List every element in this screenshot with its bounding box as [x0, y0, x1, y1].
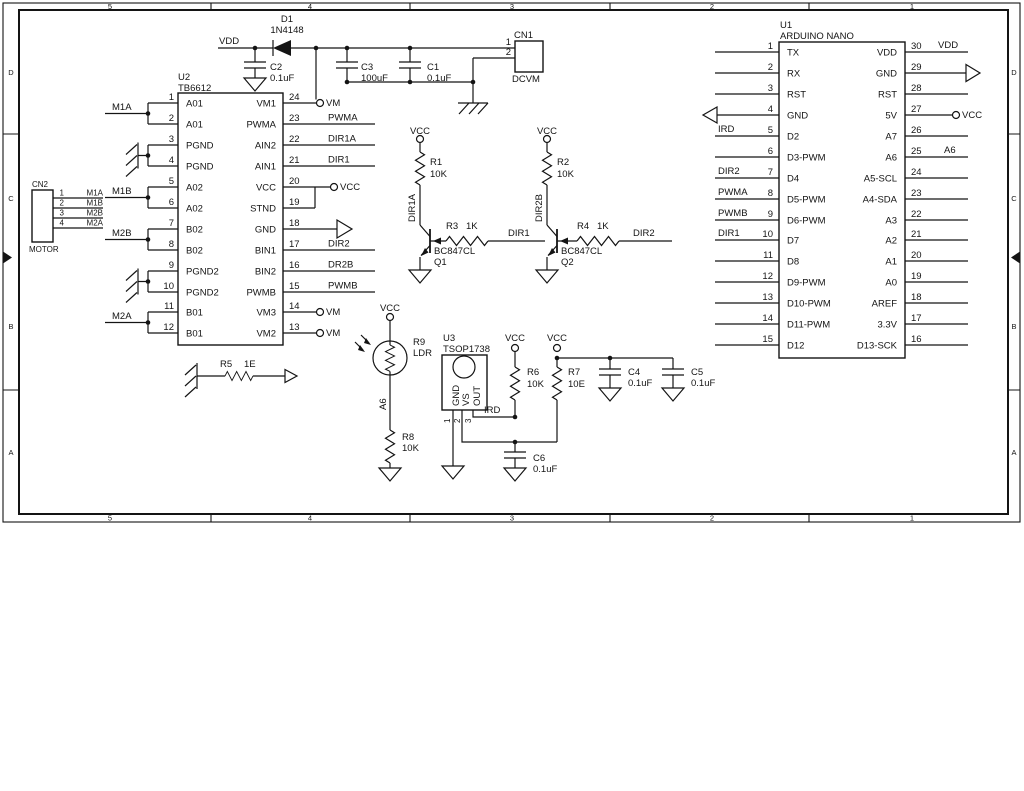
u1-pin-name: A7 [885, 132, 897, 143]
u1-pin-number: 15 [762, 334, 773, 345]
ground-symbols [126, 78, 684, 481]
zone-row-left: D [8, 68, 14, 77]
u1-pin-number: 21 [911, 229, 922, 240]
vcc-port-icon [387, 314, 394, 321]
u1-pin-name: GND [787, 111, 808, 122]
diode-d1: D1 1N4148 [270, 14, 303, 56]
zone-col-bottom: 3 [510, 514, 514, 523]
u2-pin-name: B01 [186, 329, 203, 340]
u2-pin-number: 2 [169, 113, 174, 124]
net-label: IRD [718, 124, 735, 135]
c5-value: 0.1uF [691, 378, 715, 389]
u2-pin-number: 22 [289, 134, 300, 145]
net-label: IRD [484, 405, 501, 416]
gnd-icon [442, 466, 464, 479]
zone-col-top: 1 [910, 2, 914, 11]
net-label: VDD [938, 40, 958, 51]
u2-pin-name: VM3 [256, 308, 276, 319]
net-label: DIR1A [328, 134, 357, 145]
driver-q2: VCC R2 10K DIR2B R4 1K DIR2 BC847CL Q2 [534, 126, 655, 268]
u2-pin-name: BIN2 [255, 267, 276, 278]
gnd-icon [244, 78, 266, 91]
u2-pin-name: PGND2 [186, 267, 219, 278]
cn2-ref: CN2 [32, 180, 49, 189]
u1-pin-name: A0 [885, 278, 897, 289]
u2-pin-name: PGND [186, 162, 214, 173]
frame-center-arrow-right [1011, 252, 1020, 264]
u1-pin-number: 30 [911, 41, 922, 52]
u1-pin-number: 13 [762, 292, 773, 303]
cn1-ref: CN1 [514, 30, 533, 41]
c3-value: 100uF [361, 73, 388, 84]
capacitor-icon [399, 62, 421, 68]
u1-pin-number: 23 [911, 188, 922, 199]
net-label: PWMA [718, 187, 748, 198]
c4-value: 0.1uF [628, 378, 652, 389]
gnd-icon [379, 468, 401, 481]
net-label-vm: VM [326, 307, 340, 318]
u1-pin-name: D3-PWM [787, 153, 826, 164]
resistor-icon [386, 430, 395, 463]
u1-pin-name: D9-PWM [787, 278, 826, 289]
schematic-page: 5 4 3 2 1 5 4 3 2 1 D C B A D C B A [0, 0, 1024, 791]
r4-ref: R4 [577, 221, 589, 232]
u1-pin-name: A1 [885, 257, 897, 268]
resistor-r5: R5 1E [220, 359, 256, 381]
u2-pin-name: A01 [186, 120, 203, 131]
vcc-port-icon [554, 345, 561, 352]
c2-value: 0.1uF [270, 73, 294, 84]
resistor-icon [416, 152, 425, 185]
u1-pin-name: 5V [885, 111, 897, 122]
u2-pin-name: VM2 [256, 329, 276, 340]
u2-pin-number: 19 [289, 197, 300, 208]
net-label: M1B [112, 186, 132, 197]
u1-pin-number: 24 [911, 167, 922, 178]
gnd-flag-icon [966, 65, 980, 82]
ldr-branch: VCC R9 LDR A6 R8 10K [355, 303, 432, 463]
zone-col-top: 2 [710, 2, 714, 11]
net-label: M1A [112, 102, 132, 113]
u2-pin-number: 15 [289, 281, 300, 292]
vcc-port-icon [953, 112, 960, 119]
net-label: DR2B [328, 260, 353, 271]
u2-pin-name: A02 [186, 183, 203, 194]
u1-pin-number: 22 [911, 209, 922, 220]
r5-value: 1E [244, 359, 256, 370]
net-label-vcc: VCC [962, 110, 982, 121]
r9-ref: R9 [413, 337, 425, 348]
u2-pin-number: 8 [169, 239, 174, 250]
vcc-port-icon [512, 345, 519, 352]
top-rail-caps: VDD C2 0.1uF C3 100uF C1 0.1uF [219, 36, 451, 84]
u3-pin-number: 3 [464, 418, 473, 423]
d1-ref: D1 [281, 14, 293, 25]
u1-pin-number: 6 [768, 146, 773, 157]
zone-col-top: 4 [308, 2, 312, 11]
u1-pin-name: RST [878, 90, 897, 101]
u1-pin-name: GND [876, 69, 897, 80]
u1-part: ARDUINO NANO [780, 31, 854, 42]
cn2-pin-number: 1 [60, 189, 65, 198]
net-label: DIR1 [508, 228, 530, 239]
zone-col-bottom: 4 [308, 514, 312, 523]
u2-pin-number: 10 [163, 281, 174, 292]
u1-pin-number: 11 [763, 250, 773, 261]
vcc-label: VCC [410, 126, 430, 137]
c6-ref: C6 [533, 453, 545, 464]
net-circles [317, 100, 960, 352]
r8-ref: R8 [402, 432, 414, 443]
r2-value: 10K [557, 169, 575, 180]
u3-pin-number: 2 [453, 418, 462, 423]
u1-pin-name: AREF [872, 299, 898, 310]
u1-pin-number: 20 [911, 250, 922, 261]
u1-pin-number: 14 [762, 313, 773, 324]
u2-pin-number: 18 [289, 218, 300, 229]
vcc-label: VCC [380, 303, 400, 314]
net-label: DIR1 [718, 228, 740, 239]
u2-pin-name: AIN1 [255, 162, 276, 173]
cn1-name: DCVM [512, 74, 540, 85]
u3-pin-name: VS [461, 393, 472, 406]
connector-cn2: CN2 MOTOR 1 2 3 4 M1A M1B M2B M2A [29, 180, 104, 254]
u1-pin-number: 12 [762, 271, 773, 282]
u1-pin-name: D7 [787, 236, 799, 247]
d1-value: 1N4148 [270, 25, 303, 36]
q1-ref: Q1 [434, 257, 447, 268]
u2-pin-number: 12 [163, 322, 174, 333]
net-label-vm: VM [326, 328, 340, 339]
zone-row-right: B [1011, 322, 1016, 331]
resistor-icon [577, 237, 619, 246]
u1-pin-number: 29 [911, 62, 922, 73]
c1-value: 0.1uF [427, 73, 451, 84]
chassis-gnd-icon [126, 269, 138, 303]
u2-pin-number: 24 [289, 92, 300, 103]
net-label: M2A [112, 311, 132, 322]
zone-col-bottom: 5 [108, 514, 112, 523]
vdd-label: VDD [219, 36, 239, 47]
u1-pin-number: 16 [911, 334, 922, 345]
u2-pin-name: BIN1 [255, 246, 276, 257]
r9-part: LDR [413, 348, 432, 359]
u2-pin-name: A01 [186, 99, 203, 110]
u1-pin-number: 18 [911, 292, 922, 303]
cn2-net-label: M2A [87, 219, 104, 228]
vm-port-icon [317, 309, 324, 316]
u1-pin-name: D12 [787, 341, 804, 352]
u2-pin-number: 11 [164, 301, 174, 312]
u2-pin-name: B02 [186, 225, 203, 236]
c3-ref: C3 [361, 62, 373, 73]
cn2-pin-number: 3 [60, 209, 65, 218]
q1-part: BC847CL [434, 246, 475, 257]
q2-part: BC847CL [561, 246, 602, 257]
resistor-icon [543, 152, 552, 185]
capacitor-icon [336, 62, 358, 68]
zone-row-left: B [8, 322, 13, 331]
net-label: PWMB [328, 281, 358, 292]
ic-u1: U1 ARDUINO NANO 1 2 3 4 5 6 7 8 9 10 11 … [718, 20, 982, 358]
u1-pin-number: 10 [762, 229, 773, 240]
u1-ref: U1 [780, 20, 792, 31]
net-label-vm: VM [326, 98, 340, 109]
r1-value: 10K [430, 169, 448, 180]
net-label-vertical: DIR2B [534, 194, 545, 222]
vm-port-icon [317, 330, 324, 337]
u3-ref: U3 [443, 333, 455, 344]
r3-value: 1K [466, 221, 478, 232]
u1-pin-number: 5 [768, 125, 773, 136]
u1-pin-number: 27 [911, 104, 922, 115]
u1-pin-number: 26 [911, 125, 922, 136]
u1-pin-name: 3.3V [877, 320, 897, 331]
chassis-gnd-icon [185, 363, 197, 397]
u1-pin-number: 3 [768, 83, 773, 94]
u1-pin-name: D8 [787, 257, 799, 268]
u2-pin-number: 13 [289, 322, 300, 333]
net-label-vcc: VCC [340, 182, 360, 193]
net-label: M2B [112, 228, 132, 239]
cn2-pin-number: 2 [60, 199, 65, 208]
u1-pin-number: 8 [768, 188, 773, 199]
c4-ref: C4 [628, 367, 640, 378]
r6-value: 10K [527, 379, 545, 390]
u2-pin-name: PGND2 [186, 288, 219, 299]
u1-pin-number: 1 [768, 41, 773, 52]
u1-pin-name: A4-SDA [863, 195, 898, 206]
u2-pin-number: 23 [289, 113, 300, 124]
r8-value: 10K [402, 443, 420, 454]
net-label: DIR2 [718, 166, 740, 177]
u1-pin-number: 17 [911, 313, 922, 324]
zone-col-top: 3 [510, 2, 514, 11]
u2-pin-name: PWMA [246, 120, 276, 131]
capacitor-icon [504, 452, 526, 458]
u1-pin-number: 19 [911, 271, 922, 282]
zone-row-left: A [8, 448, 13, 457]
u2-pin-number: 20 [289, 176, 300, 187]
frame-center-arrow-left [3, 252, 12, 264]
u2-part: TB6612 [178, 83, 211, 94]
u1-pin-name: RX [787, 69, 801, 80]
r5-ref: R5 [220, 359, 232, 370]
net-label: DIR2 [633, 228, 655, 239]
chassis-gnd-icon [458, 103, 488, 114]
resistor-icon [225, 372, 253, 381]
r7-value: 10E [568, 379, 585, 390]
r1-ref: R1 [430, 157, 442, 168]
u1-pin-number: 28 [911, 83, 922, 94]
r6-ref: R6 [527, 367, 539, 378]
gnd-flag-icon [703, 107, 717, 123]
u2-pin-number: 7 [169, 218, 174, 229]
c1-ref: C1 [427, 62, 439, 73]
u1-pin-number: 2 [768, 62, 773, 73]
u2-pin-number: 6 [169, 197, 174, 208]
cn2-pin-number: 4 [60, 219, 65, 228]
u2-pin-number: 16 [289, 260, 300, 271]
c6-value: 0.1uF [533, 464, 557, 475]
resistor-icon [446, 237, 488, 246]
u2-pin-name: AIN2 [255, 141, 276, 152]
c5-ref: C5 [691, 367, 703, 378]
u2-ref: U2 [178, 72, 190, 83]
zone-row-right: D [1011, 68, 1017, 77]
net-label: DIR2 [328, 239, 350, 250]
u2-pin-name: B01 [186, 308, 203, 319]
vcc-label: VCC [547, 333, 567, 344]
u3-pin-number: 1 [443, 418, 452, 423]
vcc-label: VCC [505, 333, 525, 344]
u1-pin-name: D6-PWM [787, 216, 826, 227]
u1-pin-name: D10-PWM [787, 299, 831, 310]
u1-pin-name: A3 [885, 216, 897, 227]
net-label: DIR1 [328, 155, 350, 166]
r7-ref: R7 [568, 367, 580, 378]
u1-pin-name: D5-PWM [787, 195, 826, 206]
r3-ref: R3 [446, 221, 458, 232]
u1-pin-number: 7 [768, 167, 773, 178]
zone-col-bottom: 2 [710, 514, 714, 523]
u3-pin-name: OUT [472, 386, 483, 406]
r2-ref: R2 [557, 157, 569, 168]
u2-pin-number: 14 [289, 301, 300, 312]
u1-pin-name: RST [787, 90, 806, 101]
u1-pin-name: D2 [787, 132, 799, 143]
u2-pin-name: STND [250, 204, 276, 215]
u1-pin-name: TX [787, 48, 800, 59]
cn2-name: MOTOR [29, 245, 59, 254]
net-label: PWMB [718, 208, 748, 219]
ir-receiver-u3: U3 TSOP1738 GND VS OUT 1 2 3 IRD VCC R6 … [442, 333, 715, 475]
u1-pin-name: VDD [877, 48, 897, 59]
cn2-net-label: M1B [87, 199, 103, 208]
u2-pin-number: 3 [169, 134, 174, 145]
c2-ref: C2 [270, 62, 282, 73]
zone-row-right: C [1011, 194, 1017, 203]
chassis-gnd-icon [126, 143, 138, 177]
u2-pin-name: PGND [186, 141, 214, 152]
u2-pin-number: 4 [169, 155, 174, 166]
u2-pin-number: 21 [289, 155, 300, 166]
net-label-vertical: A6 [378, 398, 389, 410]
net-label: PWMA [328, 113, 358, 124]
gnd-icon [409, 270, 431, 283]
diode-icon [273, 40, 291, 56]
capacitor-icon [662, 369, 684, 375]
u1-pin-name: D11-PWM [787, 320, 830, 331]
u1-pin-name: A5-SCL [864, 174, 897, 185]
resistor-icon [511, 367, 520, 400]
u2-pin-number: 1 [169, 92, 174, 103]
schematic-canvas: 5 4 3 2 1 5 4 3 2 1 D C B A D C B A [0, 0, 1024, 791]
gnd-icon [662, 388, 684, 401]
u1-pin-name: D13-SCK [857, 341, 898, 352]
u1-pin-number: 9 [768, 209, 773, 220]
u1-pin-number: 4 [768, 104, 773, 115]
u1-pin-number: 25 [911, 146, 922, 157]
cn1-pin-number: 2 [506, 47, 511, 58]
resistor-icon [553, 367, 562, 400]
gnd-icon [504, 468, 526, 481]
gnd-icon [599, 388, 621, 401]
u1-pin-name: A6 [885, 153, 897, 164]
capacitor-icon [244, 62, 266, 68]
zone-row-left: C [8, 194, 14, 203]
u1-pin-name: D4 [787, 174, 799, 185]
gnd-flag-icon [285, 370, 297, 383]
q2-ref: Q2 [561, 257, 574, 268]
u2-pin-name: A02 [186, 204, 203, 215]
u2-pin-name: GND [255, 225, 276, 236]
u2-pin-name: PWMB [246, 288, 276, 299]
u2-pin-name: VCC [256, 183, 276, 194]
net-label: A6 [944, 145, 956, 156]
wires-u1 [715, 52, 968, 345]
driver-q1: VCC R1 10K DIR1A R3 1K DIR1 BC847CL Q1 [407, 126, 530, 268]
u1-pin-name: A2 [885, 236, 897, 247]
zone-col-top: 5 [108, 2, 112, 11]
u2-pin-number: 5 [169, 176, 174, 187]
r4-value: 1K [597, 221, 609, 232]
gnd-icon [536, 270, 558, 283]
vcc-label: VCC [537, 126, 557, 137]
zone-col-bottom: 1 [910, 514, 914, 523]
u3-part: TSOP1738 [443, 344, 490, 355]
vcc-port-icon [331, 184, 338, 191]
zone-row-right: A [1011, 448, 1016, 457]
u2-pin-number: 17 [289, 239, 300, 250]
u2-pin-name: B02 [186, 246, 203, 257]
u2-pin-name: VM1 [256, 99, 276, 110]
cn2-net-label: M1A [87, 189, 104, 198]
capacitor-icon [599, 369, 621, 375]
gnd-flag-icon [337, 220, 352, 238]
net-label-vertical: DIR1A [407, 193, 418, 222]
u2-pin-number: 9 [169, 260, 174, 271]
ground-flags [285, 65, 980, 383]
cn2-net-label: M2B [87, 209, 103, 218]
vm-port-icon [317, 100, 324, 107]
wires-sensors [390, 321, 673, 469]
